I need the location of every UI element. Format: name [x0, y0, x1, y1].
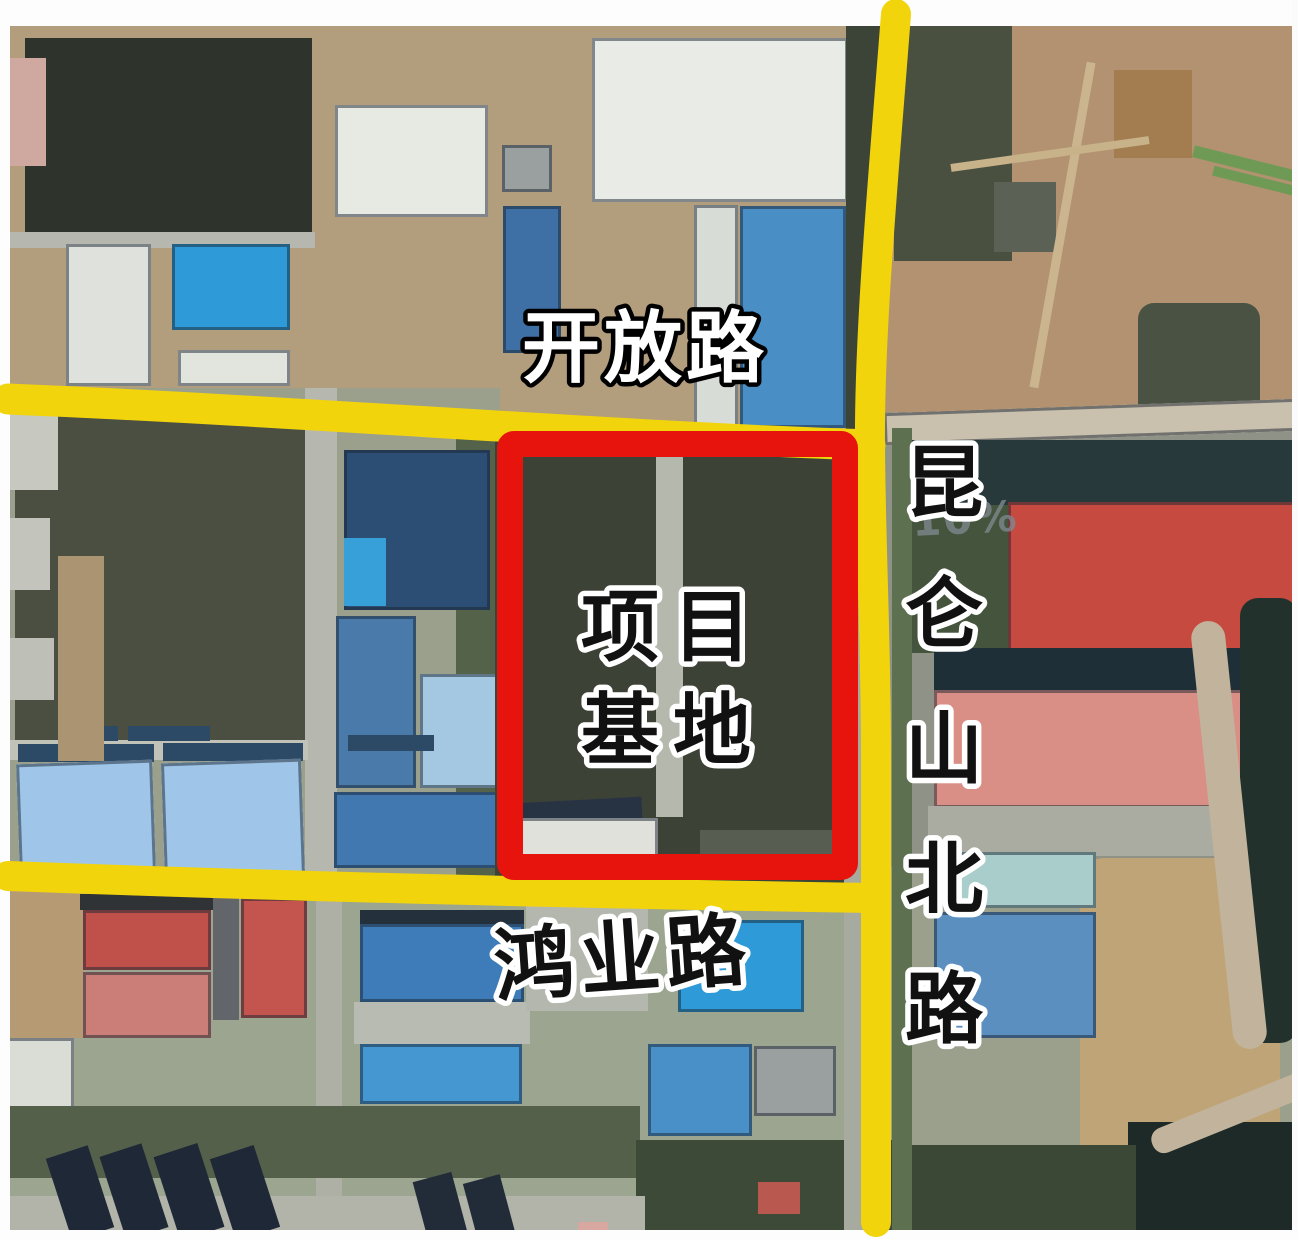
road-line-kunlunshan — [870, 14, 896, 1222]
satellite-map: 10% 开放路 项目 基地 鸿业路 昆 仑 山 北 路 — [0, 0, 1298, 1240]
map-overlay: 10% 开放路 项目 基地 鸿业路 昆 仑 山 北 路 — [0, 0, 1298, 1240]
road-label-hongye: 鸿业路 — [491, 903, 755, 1014]
road-label-kunlunshan-char2: 仑 — [905, 570, 983, 660]
site-label-line1: 项目 — [581, 583, 765, 673]
road-label-kunlunshan-char1: 昆 — [905, 439, 983, 529]
road-label-kunlunshan-char4: 北 — [905, 835, 983, 925]
road-label-kunlunshan-char3: 山 — [905, 705, 983, 795]
road-label-kaifang: 开放路 — [522, 304, 768, 394]
road-label-kunlunshan-char5: 路 — [905, 965, 984, 1055]
site-label-line2: 基地 — [581, 686, 765, 776]
